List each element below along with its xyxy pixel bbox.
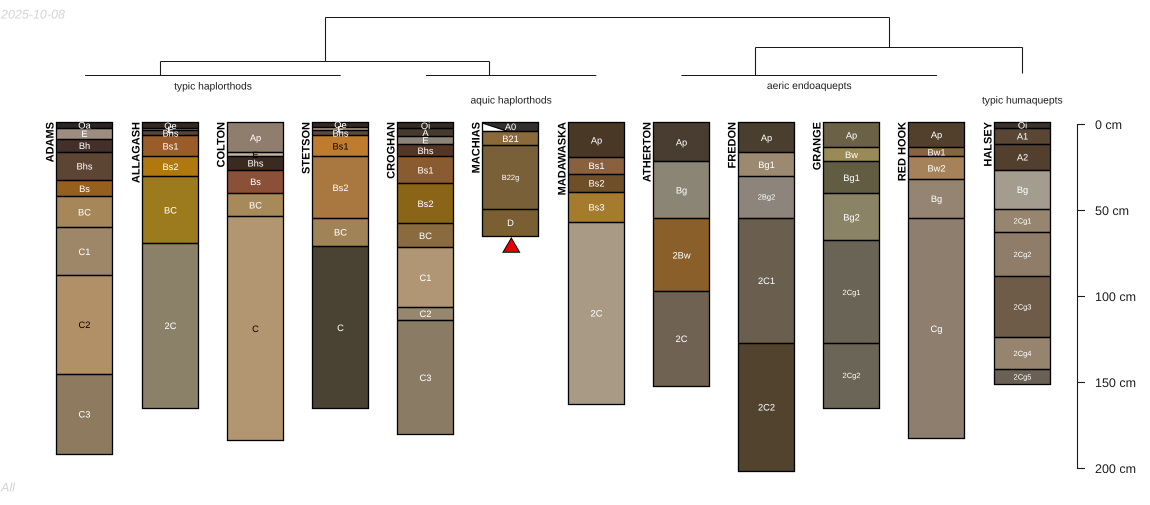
svg-text:Bs1: Bs1 — [162, 142, 178, 152]
svg-text:E: E — [422, 136, 428, 146]
svg-text:Oi: Oi — [1018, 121, 1027, 131]
svg-text:2Cg5: 2Cg5 — [1014, 373, 1032, 382]
svg-text:0 cm: 0 cm — [1095, 118, 1122, 132]
svg-text:Ap: Ap — [676, 137, 687, 147]
svg-text:typic haplorthods: typic haplorthods — [174, 82, 252, 93]
svg-text:aeric endoaquepts: aeric endoaquepts — [767, 81, 852, 92]
svg-text:COLTON: COLTON — [216, 122, 228, 167]
svg-text:Bs: Bs — [79, 184, 90, 194]
svg-text:B22g: B22g — [502, 173, 520, 182]
svg-text:Bg2: Bg2 — [843, 212, 860, 222]
svg-text:C3: C3 — [79, 409, 91, 419]
svg-text:2Bg2: 2Bg2 — [758, 193, 776, 202]
svg-text:2Cg2: 2Cg2 — [1014, 250, 1032, 259]
svg-text:All: All — [0, 481, 16, 495]
svg-text:Bhs: Bhs — [332, 128, 348, 138]
svg-text:typic humaquepts: typic humaquepts — [982, 95, 1063, 106]
svg-text:Ap: Ap — [250, 133, 261, 143]
svg-text:BC: BC — [334, 228, 347, 238]
svg-text:A2: A2 — [1017, 152, 1028, 162]
svg-text:D: D — [507, 218, 514, 228]
svg-text:MACHIAS: MACHIAS — [471, 122, 483, 173]
svg-text:C2: C2 — [420, 309, 432, 319]
svg-text:2Cg2: 2Cg2 — [843, 371, 861, 380]
svg-text:Bs1: Bs1 — [417, 165, 433, 175]
svg-text:Bs1: Bs1 — [588, 161, 604, 171]
svg-text:Bh: Bh — [79, 141, 90, 151]
svg-text:Bs1: Bs1 — [332, 142, 348, 152]
svg-text:B21: B21 — [502, 134, 519, 144]
svg-text:2C: 2C — [165, 321, 177, 331]
svg-text:Bg1: Bg1 — [758, 160, 775, 170]
svg-text:2Bw: 2Bw — [672, 250, 690, 260]
svg-text:Bs2: Bs2 — [162, 162, 178, 172]
svg-text:A0: A0 — [505, 122, 516, 132]
svg-text:50 cm: 50 cm — [1095, 204, 1129, 218]
svg-text:FREDON: FREDON — [727, 122, 739, 169]
svg-text:Bw: Bw — [845, 150, 858, 160]
svg-text:150 cm: 150 cm — [1095, 376, 1136, 390]
svg-text:2C1: 2C1 — [758, 276, 775, 286]
svg-text:Bs2: Bs2 — [588, 179, 604, 189]
svg-text:2Cg4: 2Cg4 — [1014, 349, 1032, 358]
svg-text:Bg: Bg — [676, 185, 687, 195]
svg-text:Bhs: Bhs — [162, 129, 178, 139]
svg-text:Bhs: Bhs — [76, 162, 92, 172]
svg-text:2C: 2C — [676, 334, 688, 344]
svg-text:2Cg3: 2Cg3 — [1014, 303, 1032, 312]
svg-text:C2: C2 — [79, 320, 91, 330]
svg-text:C: C — [252, 324, 259, 334]
svg-text:Bg: Bg — [931, 194, 942, 204]
svg-text:Bg1: Bg1 — [843, 173, 860, 183]
svg-text:STETSON: STETSON — [301, 122, 313, 174]
svg-text:Cg: Cg — [931, 324, 943, 334]
svg-text:2C2: 2C2 — [758, 403, 775, 413]
svg-text:BC: BC — [419, 231, 432, 241]
svg-text:BC: BC — [249, 201, 262, 211]
svg-text:Bg: Bg — [1017, 185, 1028, 195]
svg-text:2Cg1: 2Cg1 — [1014, 217, 1032, 226]
svg-text:CROGHAN: CROGHAN — [386, 122, 398, 179]
svg-text:Bs2: Bs2 — [332, 183, 348, 193]
svg-text:2Cg1: 2Cg1 — [843, 288, 861, 297]
svg-text:200 cm: 200 cm — [1095, 462, 1136, 476]
svg-text:Bs: Bs — [250, 177, 261, 187]
svg-text:ALLAGASH: ALLAGASH — [131, 122, 143, 183]
svg-text:100 cm: 100 cm — [1095, 290, 1136, 304]
svg-text:C3: C3 — [420, 373, 432, 383]
svg-text:Bw1: Bw1 — [927, 147, 945, 157]
svg-text:Ap: Ap — [846, 130, 857, 140]
svg-text:E: E — [81, 129, 87, 139]
svg-text:C1: C1 — [420, 273, 432, 283]
svg-text:MADAWASKA: MADAWASKA — [557, 122, 569, 195]
svg-text:Ap: Ap — [931, 130, 942, 140]
svg-text:ATHERTON: ATHERTON — [642, 122, 654, 182]
svg-text:C1: C1 — [79, 247, 91, 257]
svg-text:A1: A1 — [1017, 131, 1028, 141]
svg-text:Ap: Ap — [591, 135, 602, 145]
svg-text:BC: BC — [164, 205, 177, 215]
svg-text:Bs3: Bs3 — [588, 202, 604, 212]
svg-text:Bw2: Bw2 — [927, 164, 945, 174]
svg-text:Ap: Ap — [761, 133, 772, 143]
svg-text:HALSEY: HALSEY — [983, 121, 995, 166]
svg-text:C: C — [337, 323, 344, 333]
svg-text:GRANGE: GRANGE — [812, 122, 824, 170]
svg-text:Bhs: Bhs — [417, 146, 433, 156]
svg-text:2C: 2C — [591, 309, 603, 319]
svg-text:Bs2: Bs2 — [417, 199, 433, 209]
svg-text:Bhs: Bhs — [247, 159, 263, 169]
svg-text:BC: BC — [78, 208, 91, 218]
svg-text:ADAMS: ADAMS — [45, 122, 57, 162]
svg-text:RED HOOK: RED HOOK — [897, 122, 909, 181]
svg-text:aquic haplorthods: aquic haplorthods — [470, 95, 551, 106]
svg-text:2025-10-08: 2025-10-08 — [0, 7, 65, 21]
